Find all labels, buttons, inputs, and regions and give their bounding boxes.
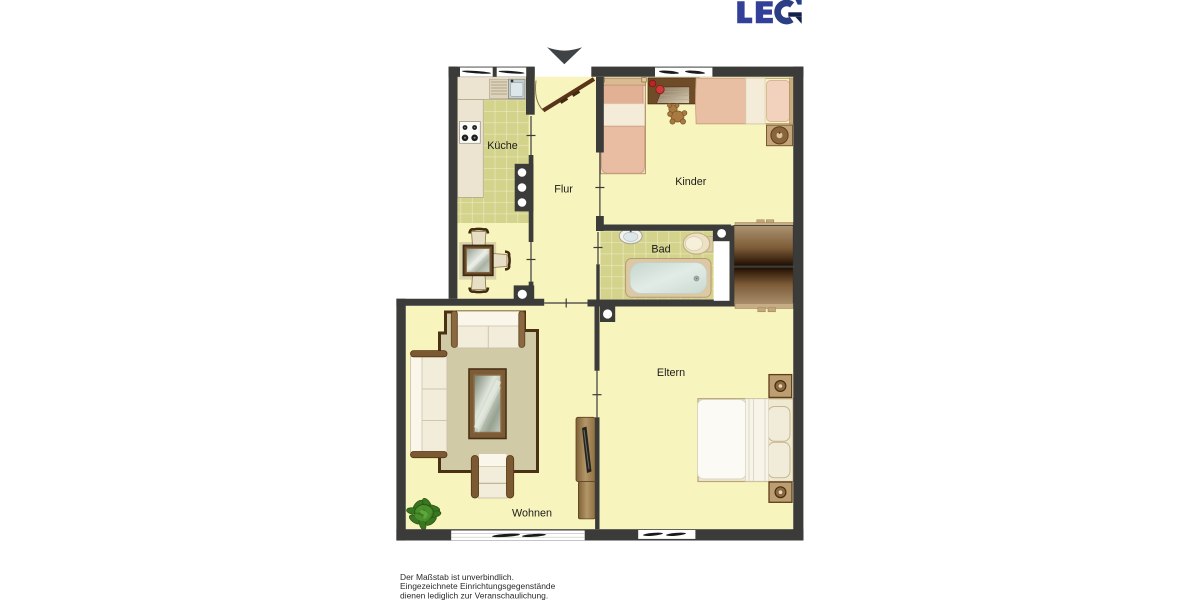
svg-text:Kinder: Kinder bbox=[675, 176, 707, 188]
svg-text:Wohnen: Wohnen bbox=[512, 507, 552, 519]
svg-text:Eltern: Eltern bbox=[657, 367, 685, 379]
svg-text:Küche: Küche bbox=[487, 140, 518, 152]
svg-text:Flur: Flur bbox=[554, 183, 573, 195]
svg-text:Bad: Bad bbox=[651, 243, 670, 255]
svg-text:dienen lediglich zur Veranscha: dienen lediglich zur Veranschaulichung. bbox=[400, 590, 548, 600]
